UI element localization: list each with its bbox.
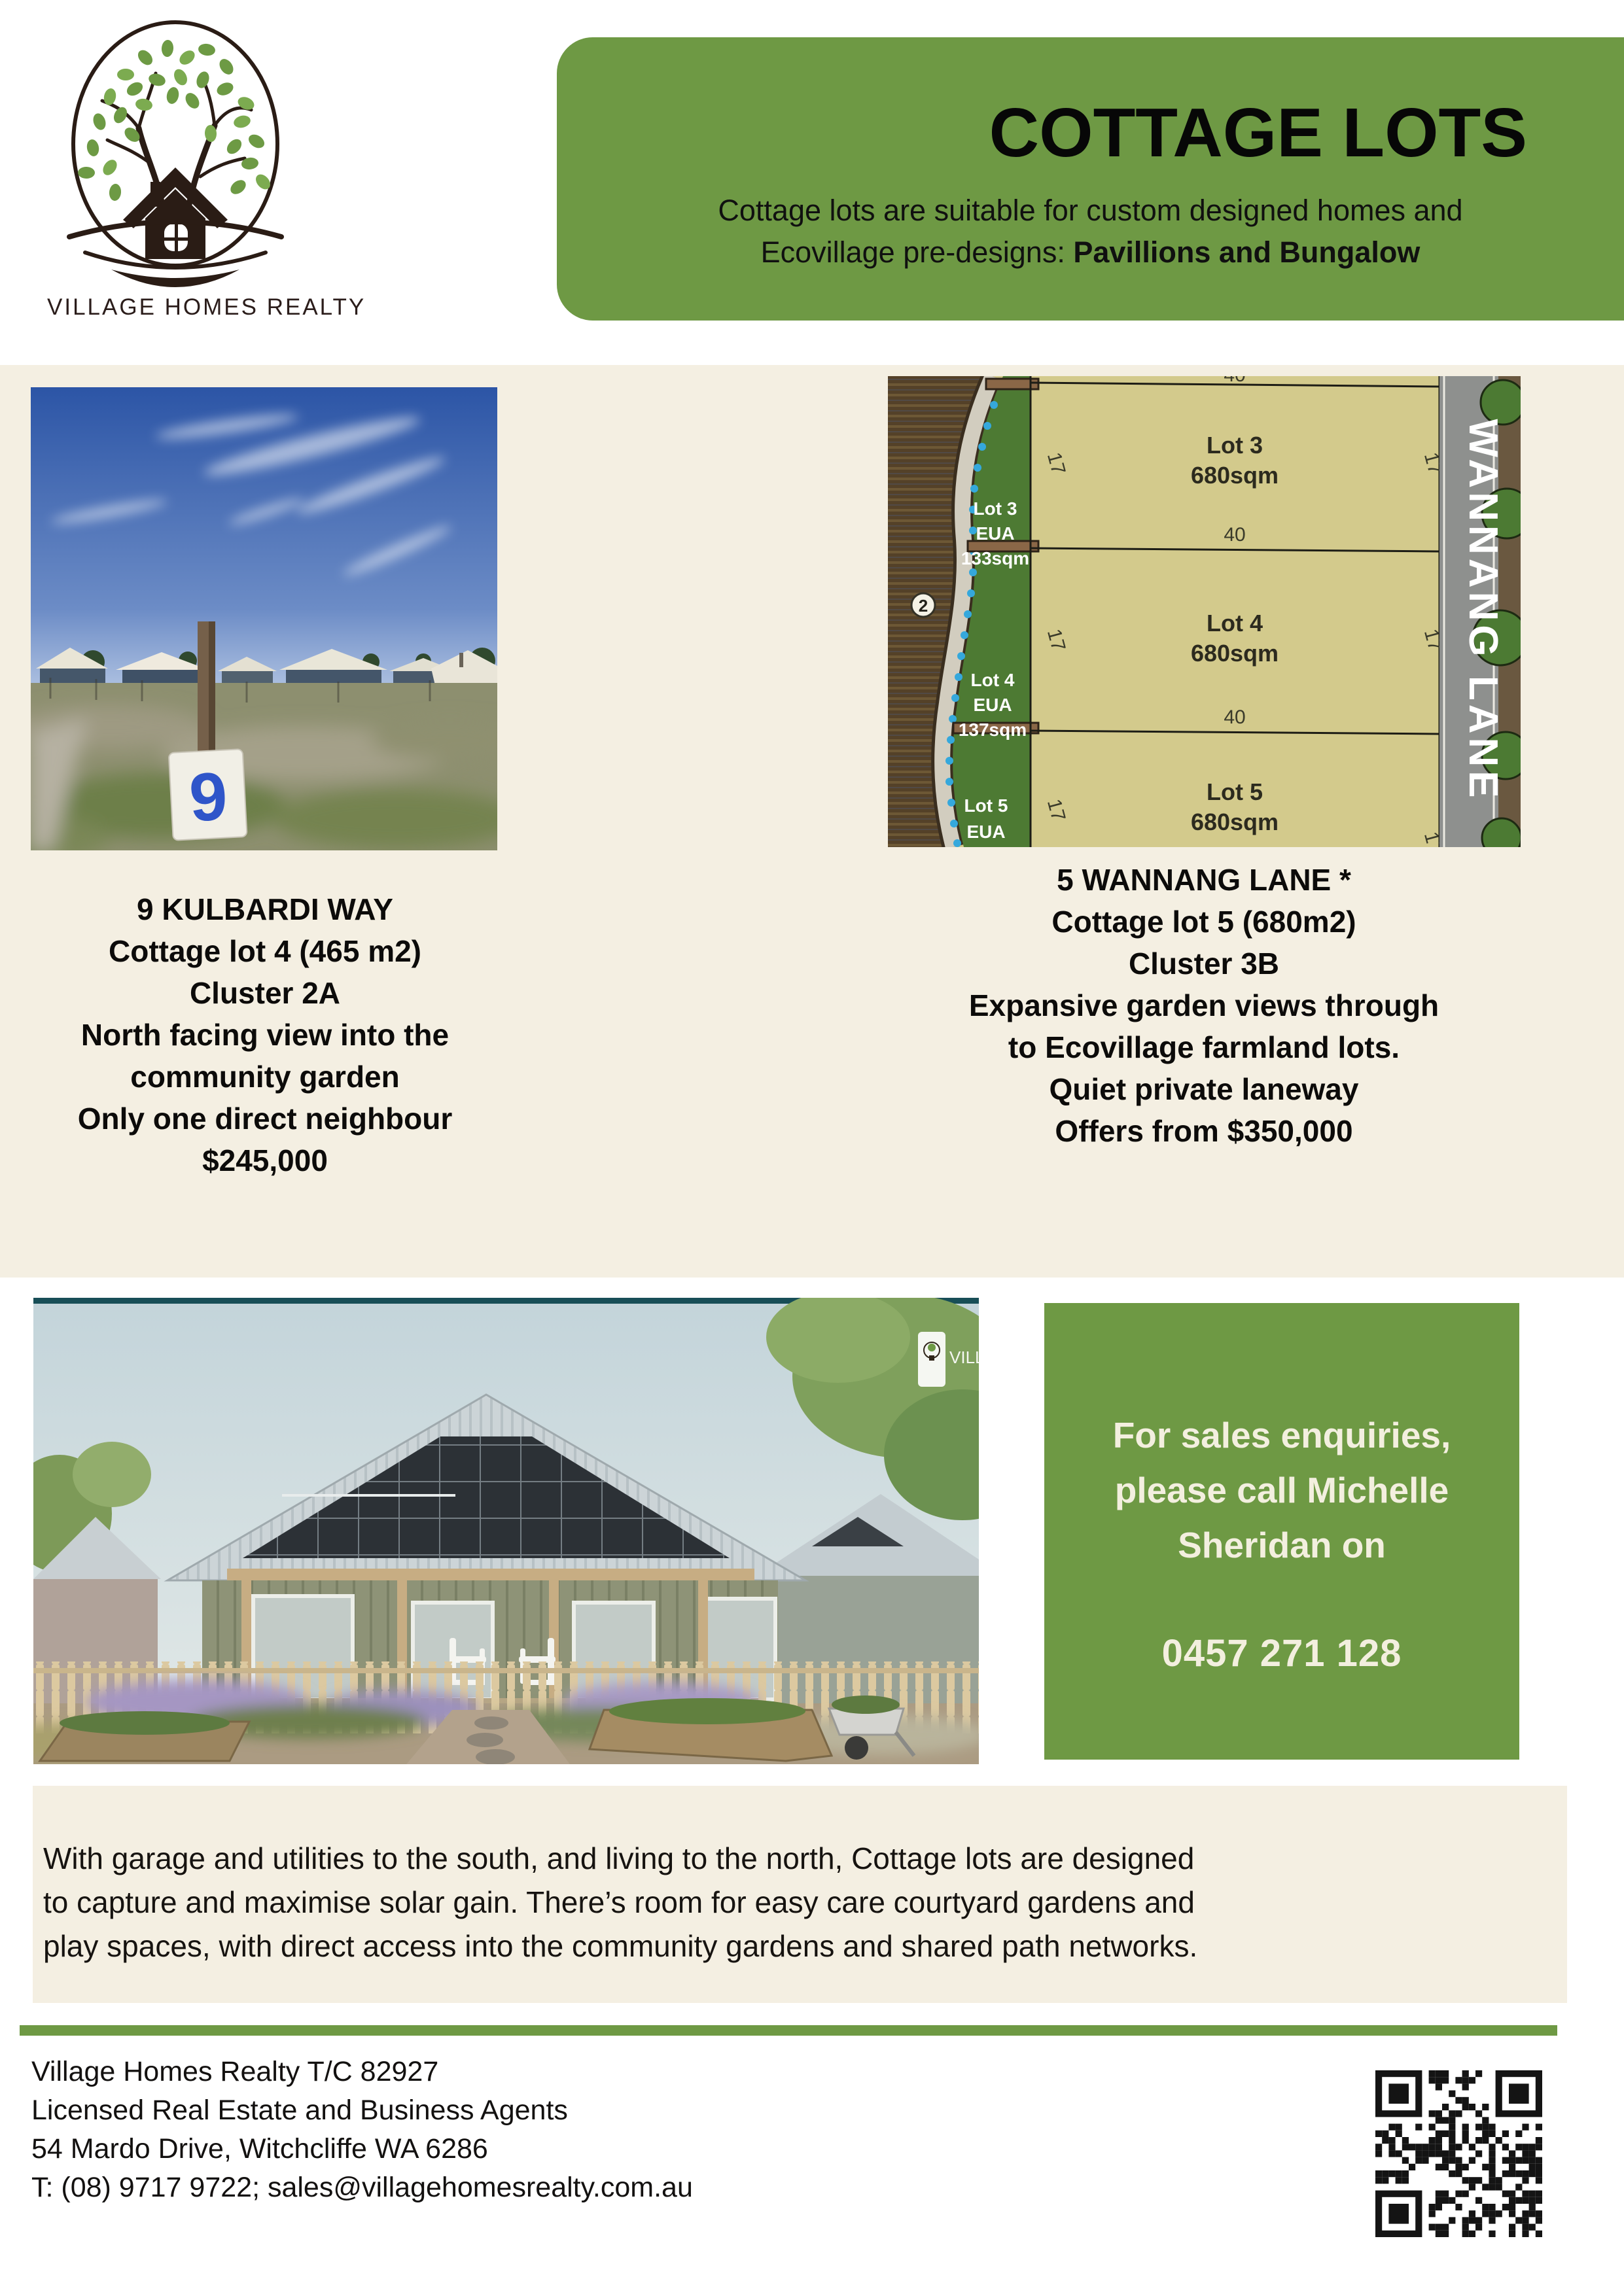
site-map: Lot 3 680sqm Lot 4 680sqm Lot 5 680sqm 4… [888, 376, 1521, 847]
caption-line: Expansive garden views through [880, 984, 1528, 1026]
eua5-lot: Lot 5 [964, 795, 1008, 816]
footer-line: Village Homes Realty T/C 82927 [31, 2053, 693, 2091]
footer-line: T: (08) 9717 9722; sales@villagehomesrea… [31, 2168, 693, 2207]
caption-line: Cottage lot 5 (680m2) [880, 901, 1528, 943]
header-banner: COTTAGE LOTS Cottage lots are suitable f… [557, 37, 1624, 321]
dim-lot4-frontage: 40 [1224, 524, 1245, 546]
caption-line: 5 WANNANG LANE * [880, 859, 1528, 901]
eua5-type: EUA [966, 822, 1005, 842]
footer-divider [20, 2025, 1557, 2036]
about-paragraph: With garage and utilities to the south, … [33, 1786, 1567, 2003]
about-line: play spaces, with direct access into the… [33, 1924, 1567, 1968]
lot-sign-number: 9 [187, 759, 229, 837]
subtitle-line-2: Ecovillage pre-designs: [761, 235, 1074, 269]
map-lot4-area: 680sqm [1191, 640, 1279, 667]
map-lot5-area: 680sqm [1191, 809, 1279, 835]
path-marker-number: 2 [919, 596, 928, 616]
subtitle-line-1: Cottage lots are suitable for custom des… [718, 194, 1462, 227]
caption-price: Offers from $350,000 [880, 1110, 1528, 1152]
sales-enquiry-box: For sales enquiries, please call Michell… [1044, 1303, 1519, 1760]
lot-photo-scene: 9 [31, 387, 497, 850]
subtitle-line-2-bold: Pavillions and Bungalow [1073, 235, 1420, 269]
map-lot3-area: 680sqm [1191, 462, 1279, 489]
qr-code [1375, 2070, 1542, 2237]
caption-line: to Ecovillage farmland lots. [880, 1026, 1528, 1068]
caption-line: Cottage lot 4 (465 m2) [39, 930, 491, 972]
svg-text:VILL: VILL [949, 1348, 979, 1367]
lot-number-sign: 9 [169, 749, 247, 841]
footer-line: Licensed Real Estate and Business Agents [31, 2091, 693, 2130]
sales-line: Sheridan on [1044, 1518, 1519, 1573]
house-render-scene: VILL [33, 1298, 979, 1764]
eua4-lot: Lot 4 [971, 670, 1015, 690]
map-lot4-name: Lot 4 [1207, 610, 1263, 636]
caption-line: Cluster 2A [39, 972, 491, 1014]
logo-graphic [47, 12, 302, 293]
about-line: With garage and utilities to the south, … [33, 1786, 1567, 1881]
logo-text: VILLAGE HOMES REALTY [47, 294, 302, 321]
listing-left-caption: 9 KULBARDI WAY Cottage lot 4 (465 m2) Cl… [39, 888, 491, 1181]
eua4-type: EUA [973, 695, 1012, 715]
header-subtitle: Cottage lots are suitable for custom des… [557, 190, 1624, 273]
caption-line: community garden [39, 1056, 491, 1098]
listings-section: 9 [0, 365, 1624, 1278]
dim-lot5-frontage: 40 [1224, 706, 1245, 728]
caption-price: $245,000 [39, 1139, 491, 1181]
footer-contact: Village Homes Realty T/C 82927 Licensed … [31, 2053, 693, 2207]
map-lot5-name: Lot 5 [1207, 778, 1263, 805]
lot-photo: 9 [31, 387, 497, 850]
road-name-label: WANNANG LANE [1460, 419, 1506, 801]
sales-line: please call Michelle [1044, 1463, 1519, 1518]
listing-right-caption: 5 WANNANG LANE * Cottage lot 5 (680m2) C… [880, 859, 1528, 1152]
caption-line: Only one direct neighbour [39, 1098, 491, 1139]
site-map-scene: Lot 3 680sqm Lot 4 680sqm Lot 5 680sqm 4… [888, 376, 1521, 847]
caption-line: 9 KULBARDI WAY [39, 888, 491, 930]
house-render-image: VILL [33, 1298, 979, 1764]
caption-line: Cluster 3B [880, 943, 1528, 984]
sales-line: For sales enquiries, [1044, 1408, 1519, 1463]
eua3-area: 133sqm [961, 548, 1029, 568]
company-logo: VILLAGE HOMES REALTY [47, 12, 302, 322]
about-line: to capture and maximise solar gain. Ther… [33, 1881, 1567, 1924]
page-title: COTTAGE LOTS [557, 94, 1624, 173]
dim-lot3-frontage: 40 [1224, 376, 1245, 386]
eua4-area: 137sqm [959, 720, 1027, 740]
eua3-type: EUA [976, 523, 1014, 544]
map-lot3-name: Lot 3 [1207, 432, 1263, 459]
sales-phone-number: 0457 271 128 [1044, 1631, 1519, 1675]
caption-line: Quiet private laneway [880, 1068, 1528, 1110]
caption-line: North facing view into the [39, 1014, 491, 1056]
footer-line: 54 Mardo Drive, Witchcliffe WA 6286 [31, 2130, 693, 2168]
eua3-lot: Lot 3 [974, 498, 1017, 519]
path-marker: 2 [911, 593, 935, 617]
